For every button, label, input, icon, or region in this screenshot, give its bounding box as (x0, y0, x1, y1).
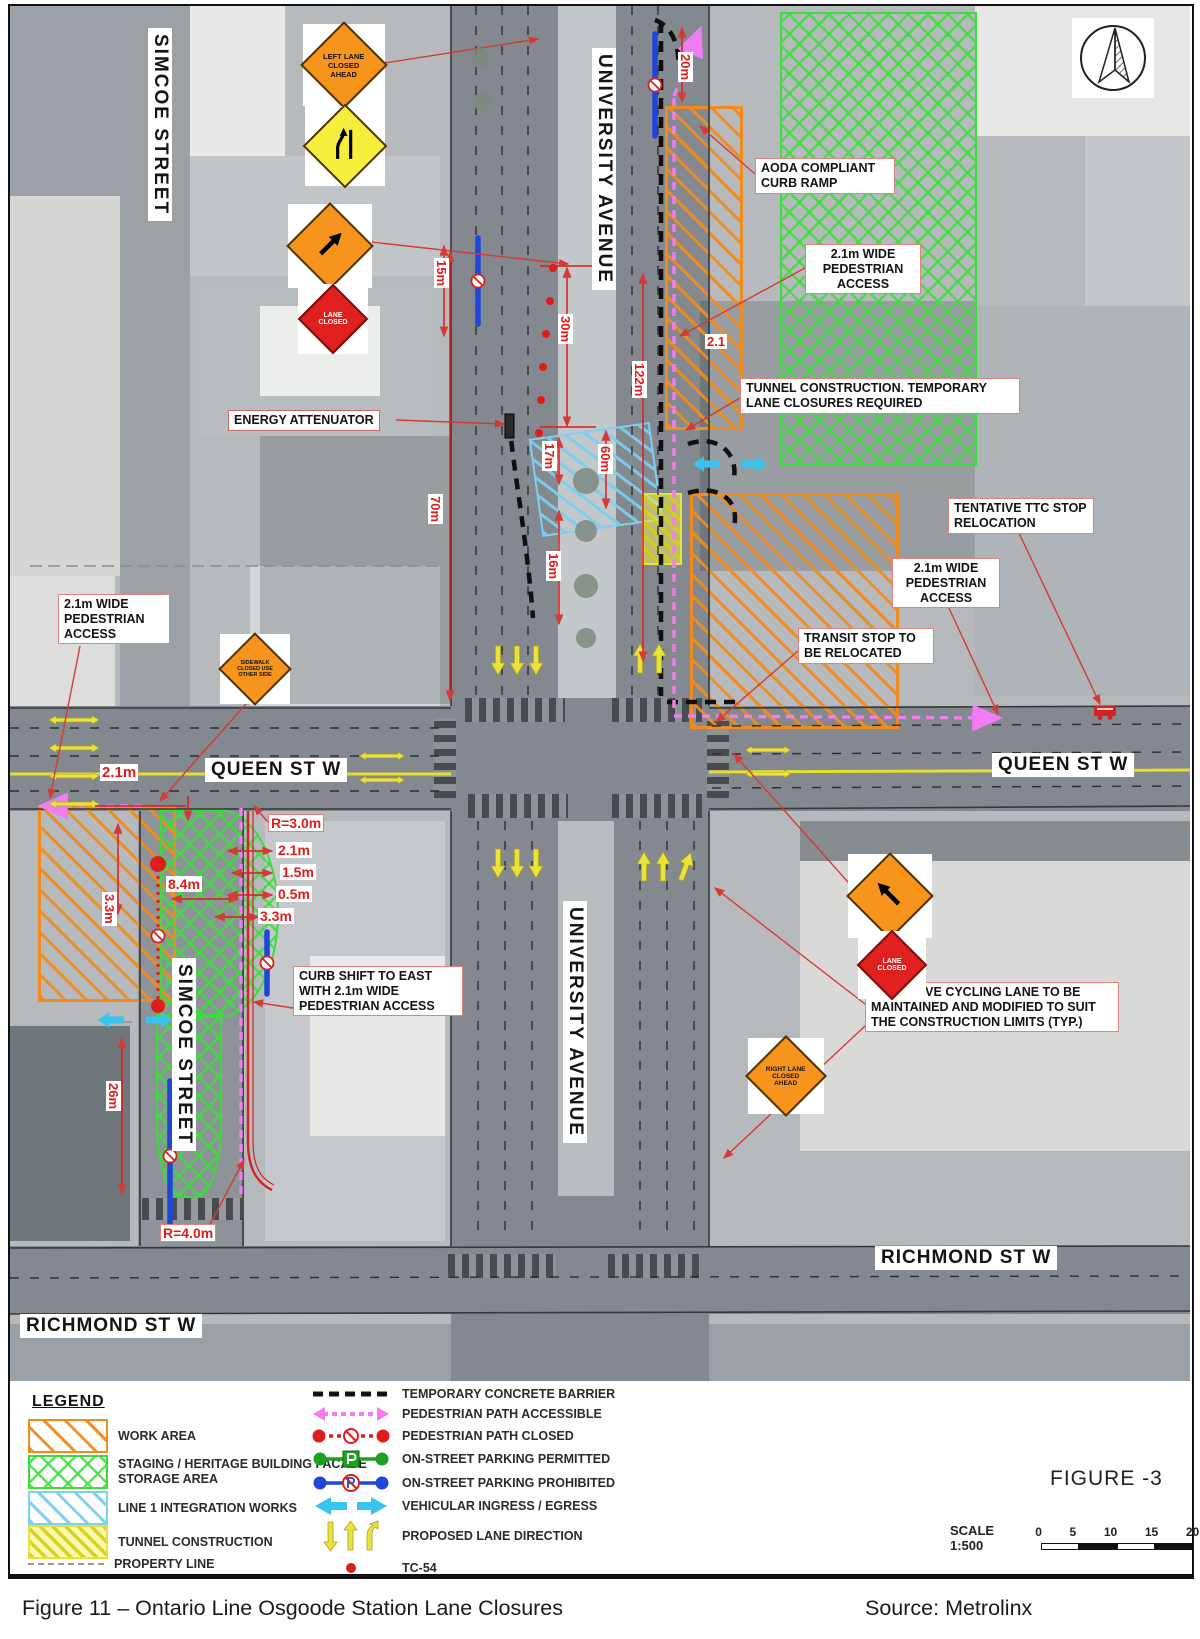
annotation-tunnel-construction: TUNNEL CONSTRUCTION. TEMPORARY LANE CLOS… (740, 378, 1020, 414)
ttc-stop-icon (1094, 706, 1116, 720)
dim-r4: R=4.0m (160, 1224, 216, 1242)
dim-30m: 30m (558, 314, 573, 344)
scale-tick: 10 (1104, 1525, 1117, 1539)
annotation-ped-access-ne: 2.1m WIDE PEDESTRIAN ACCESS (805, 244, 921, 294)
dim-2-1: 2.1 (705, 334, 727, 349)
street-label-queen-right: QUEEN ST W (992, 753, 1134, 777)
annotation-ped-access-east: 2.1m WIDE PEDESTRIAN ACCESS (892, 558, 1000, 608)
scale-label: SCALE 1:500 (950, 1523, 1029, 1555)
street-label-simcoe-bottom: SIMCOE STREET (172, 958, 196, 1151)
drawing-frame: SIMCOE STREET UNIVERSITY AVENUE UNIVERSI… (8, 4, 1194, 1579)
dim-15m: 15m (434, 258, 449, 288)
dim-122m: 122m (632, 361, 647, 398)
sign-left-lane-closed-ahead: LEFT LANE CLOSED AHEAD (303, 24, 385, 106)
dim-16m: 16m (546, 551, 561, 581)
pedestrian-closed-icon (152, 930, 165, 943)
ped-closed-icon (310, 1425, 392, 1447)
dim-3-3m-vert: 3.3m (102, 892, 117, 926)
scale-tick: 20 (1186, 1525, 1199, 1539)
annotation-energy-attenuator: ENERGY ATTENUATOR (228, 410, 380, 431)
legend-row-parking-permitted: ON-STREET PARKING PERMITTED (310, 1448, 610, 1470)
no-parking-icon (472, 275, 485, 288)
street-label-richmond-left: RICHMOND ST W (20, 1314, 202, 1338)
no-parking-icon (261, 957, 274, 970)
line1-swatch (28, 1491, 108, 1525)
sign-right-lane-closed-ahead: RIGHT LANE CLOSED AHEAD (748, 1038, 824, 1114)
figure-number: FIGURE -3 (1050, 1467, 1163, 1491)
north-arrow (1072, 18, 1154, 98)
scale-tick: 0 (1035, 1525, 1042, 1539)
dim-0-5m: 0.5m (276, 886, 312, 902)
source-caption: Source: Metrolinx (865, 1596, 1032, 1621)
concrete-barrier-icon (310, 1383, 392, 1405)
annotation-ttc-stop-relocation: TENTATIVE TTC STOP RELOCATION (948, 498, 1094, 534)
legend-row-lane-direction: PROPOSED LANE DIRECTION (310, 1519, 583, 1553)
no-parking-icon (164, 1150, 177, 1163)
dim-70m: 70m (428, 494, 443, 524)
dim-r3: R=3.0m (268, 814, 324, 832)
legend-row-ingress-egress: VEHICULAR INGRESS / EGRESS (310, 1495, 597, 1517)
staging-swatch (28, 1455, 108, 1489)
dim-17m: 17m (542, 441, 557, 471)
legend-row-tunnel: TUNNEL CONSTRUCTION (28, 1525, 273, 1559)
dim-2-1m: 2.1m (276, 842, 312, 858)
tc54-icon (310, 1557, 392, 1579)
dim-8-4m: 8.4m (166, 876, 202, 892)
lane-direction-arrows (49, 644, 790, 882)
sign-lane-closed-east: LANE CLOSED (858, 931, 926, 999)
tunnel-swatch (28, 1525, 108, 1559)
legend-row-line1: LINE 1 INTEGRATION WORKS (28, 1491, 297, 1525)
scale-tick: 5 (1070, 1525, 1077, 1539)
legend-title: LEGEND (32, 1393, 105, 1411)
ingress-egress-legend-icon (310, 1495, 392, 1517)
sign-curve-arrow-west-icon (288, 204, 372, 288)
legend-row-ped-accessible: PEDESTRIAN PATH ACCESSIBLE (310, 1403, 602, 1425)
parking-prohibited-icon (310, 1472, 392, 1494)
sign-lane-closed-west: LANE CLOSED (298, 284, 368, 354)
annotation-transit-stop: TRANSIT STOP TO BE RELOCATED (798, 628, 934, 664)
dim-queen-2-1m: 2.1m (100, 764, 138, 781)
figure-caption: Figure 11 – Ontario Line Osgoode Station… (22, 1596, 563, 1621)
caption-bar: Figure 11 – Ontario Line Osgoode Station… (0, 1588, 1200, 1634)
legend-row-concrete-barrier: TEMPORARY CONCRETE BARRIER (310, 1383, 615, 1405)
ped-accessible-icon (310, 1403, 392, 1425)
legend-row-parking-prohibited: ON-STREET PARKING PROHIBITED (310, 1472, 615, 1494)
sign-lane-merge-icon (305, 106, 385, 186)
annotation-ped-access-west: 2.1m WIDE PEDESTRIAN ACCESS (58, 594, 170, 644)
street-label-university-bottom: UNIVERSITY AVENUE (563, 901, 587, 1143)
drawing-sheet: SIMCOE STREET UNIVERSITY AVENUE UNIVERSI… (0, 0, 1200, 1639)
legend-row-tc54: TC-54 (310, 1557, 437, 1579)
work-area-swatch (28, 1419, 108, 1453)
legend-row-work-area: WORK AREA (28, 1419, 196, 1453)
legend-row-property-line: PROPERTY LINE (28, 1557, 214, 1572)
legend-row-ped-closed: PEDESTRIAN PATH CLOSED (310, 1425, 574, 1447)
street-label-university-top: UNIVERSITY AVENUE (592, 48, 616, 290)
legend: LEGEND WORK AREA STAGING / HERITAGE BUIL… (10, 1381, 1190, 1574)
annotation-curb-shift: CURB SHIFT TO EAST WITH 2.1m WIDE PEDEST… (293, 966, 463, 1016)
dim-60m: 60m (598, 444, 613, 474)
sign-sidewalk-closed: SIDEWALK CLOSED USE OTHER SIDE (220, 634, 290, 704)
annotation-aoda-curb-ramp: AODA COMPLIANT CURB RAMP (755, 158, 895, 194)
dim-20m: 20m (678, 52, 693, 82)
dim-26m: 26m (106, 1081, 121, 1111)
dim-3-3m: 3.3m (258, 908, 294, 924)
lane-direction-legend-icon (310, 1525, 392, 1547)
property-line-swatch (28, 1563, 104, 1567)
dim-1-5m: 1.5m (280, 864, 316, 880)
sign-curve-arrow-east-icon (848, 854, 932, 938)
no-parking-icon (649, 79, 662, 92)
parking-permitted-icon (310, 1448, 392, 1470)
street-label-simcoe-top: SIMCOE STREET (148, 28, 172, 221)
street-label-queen-left: QUEEN ST W (205, 758, 347, 782)
scale-tick: 15 (1145, 1525, 1158, 1539)
street-label-richmond-right: RICHMOND ST W (875, 1246, 1057, 1270)
map-area: SIMCOE STREET UNIVERSITY AVENUE UNIVERSI… (10, 6, 1190, 1381)
scale-bar: SCALE 1:500 0 5 10 15 20 (950, 1523, 1190, 1555)
